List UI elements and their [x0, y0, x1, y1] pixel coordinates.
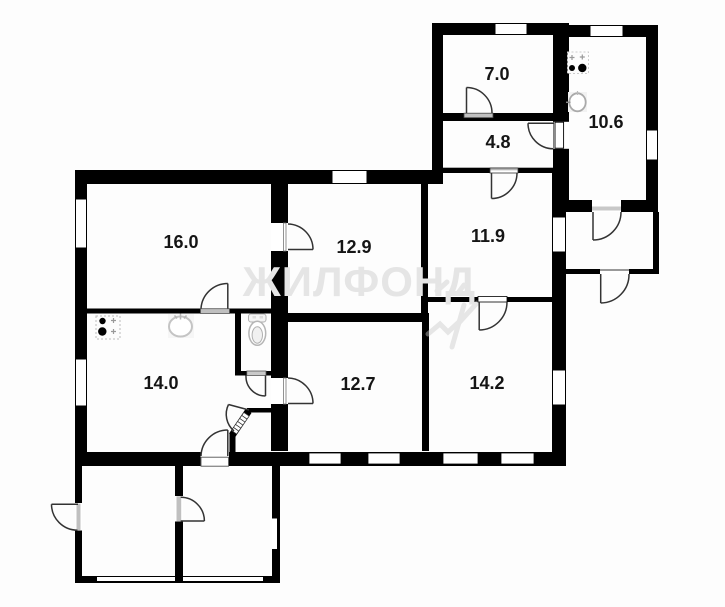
- svg-text:12.9: 12.9: [336, 237, 371, 257]
- svg-text:14.0: 14.0: [143, 373, 178, 393]
- svg-text:7.0: 7.0: [484, 64, 509, 84]
- svg-text:16.0: 16.0: [163, 232, 198, 252]
- svg-text:12.7: 12.7: [340, 374, 375, 394]
- svg-text:11.9: 11.9: [471, 226, 505, 246]
- svg-text:14.2: 14.2: [469, 373, 504, 393]
- svg-text:4.8: 4.8: [485, 132, 510, 152]
- svg-text:ЖИЛФОНД: ЖИЛФОНД: [242, 258, 476, 305]
- svg-text:10.6: 10.6: [588, 112, 623, 132]
